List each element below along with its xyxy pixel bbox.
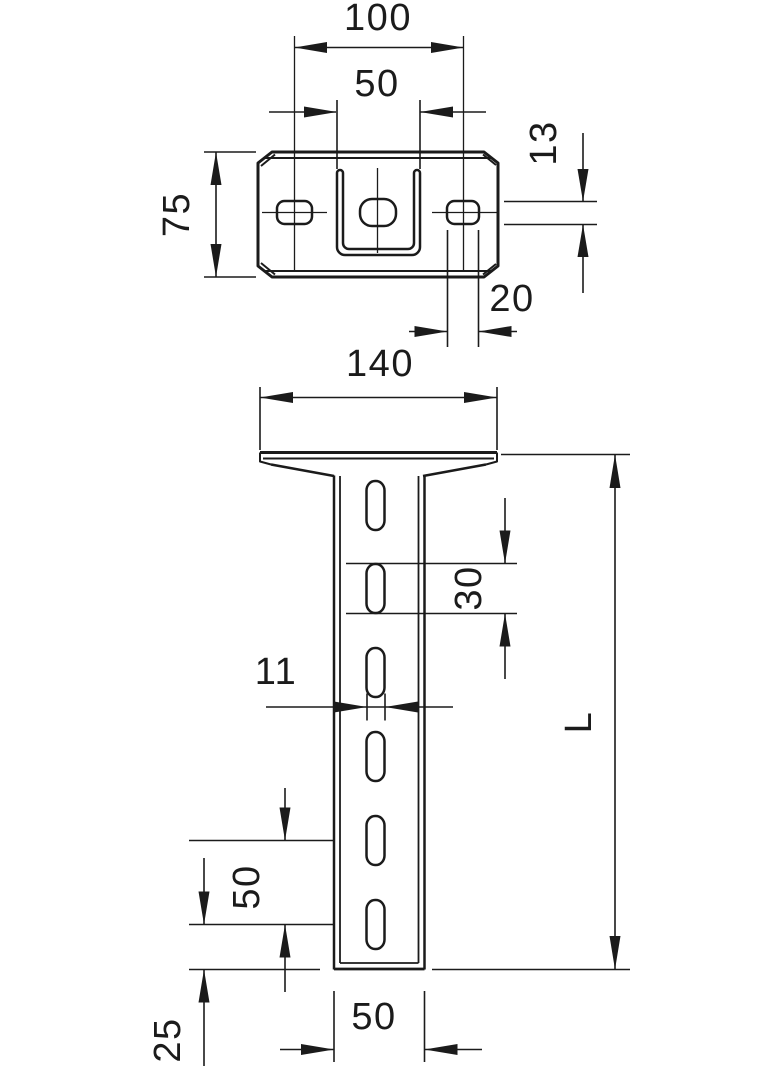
dim-arrow-140-left (260, 392, 293, 403)
front-view: 140 30 11 L (147, 343, 630, 1066)
dim-arrow-L-top (610, 455, 621, 489)
u-profile-walls (337, 170, 420, 255)
dim-label-20: 20 (489, 278, 534, 320)
dim-arrow-100-left (295, 42, 328, 53)
dimension-plate-depth: 75 (156, 152, 256, 277)
dim-label-50-pitch: 50 (226, 864, 268, 909)
dimension-total-length: L (432, 455, 630, 970)
dimension-slot-center-spacing: 100 (295, 0, 464, 53)
dim-label-30: 30 (448, 565, 490, 610)
post-slot-2 (367, 564, 385, 613)
dimension-post-width: 50 (280, 991, 482, 1062)
top-view: 100 50 75 13 (156, 0, 597, 347)
dim-arrow-20-left (415, 326, 448, 337)
dimension-plate-width: 140 (260, 343, 497, 450)
dim-arrow-100-right (431, 42, 464, 53)
dim-label-13: 13 (523, 120, 565, 165)
dim-arrow-75-top (211, 152, 222, 185)
dim-arrow-25-bottom (199, 970, 210, 1003)
dimension-slot-pitch: 50 (189, 788, 334, 992)
dim-arrow-13-top (578, 169, 589, 202)
dim-arrow-11-right (385, 702, 418, 713)
dim-label-75: 75 (156, 192, 198, 237)
dim-arrow-30-top (500, 531, 511, 564)
post-slot-6 (367, 900, 385, 949)
dim-arrow-50t-right (420, 107, 453, 118)
dim-label-50-top: 50 (354, 63, 399, 105)
head-plate-underside-right (423, 465, 486, 477)
post-slot-1 (367, 481, 385, 530)
post-slot-5 (367, 816, 385, 865)
dim-arrow-75-bottom (211, 244, 222, 277)
dim-arrow-50b-right (425, 1044, 458, 1055)
dim-arrow-140-right (464, 392, 497, 403)
dim-arrow-11-left (334, 702, 367, 713)
dim-label-50-bottom: 50 (351, 996, 396, 1038)
dim-label-100: 100 (344, 0, 412, 39)
dim-label-25: 25 (147, 1017, 189, 1062)
dim-arrow-25-top (199, 892, 210, 925)
dim-arrow-L-bottom (610, 936, 621, 970)
dim-label-11: 11 (255, 651, 297, 693)
dim-label-140: 140 (346, 343, 414, 385)
dim-arrow-50b-left (301, 1044, 334, 1055)
dim-arrow-50p-bottom (280, 925, 291, 958)
technical-drawing-page: 100 50 75 13 (0, 0, 784, 1066)
dim-arrow-50p-top (280, 808, 291, 841)
technical-drawing-canvas: 100 50 75 13 (0, 0, 784, 1066)
post-slot-4 (367, 732, 385, 781)
dimension-side-slot-width: 20 (409, 230, 535, 347)
dim-arrow-13-bottom (578, 225, 589, 258)
head-plate-underside-left (271, 465, 334, 477)
post-slot-3 (367, 648, 385, 697)
dim-label-L: L (558, 711, 600, 734)
dimension-side-slot-height: 13 (504, 120, 597, 293)
dim-arrow-30-bottom (500, 614, 511, 647)
dim-arrow-20-right (479, 326, 512, 337)
slotted-post (334, 476, 425, 970)
dim-arrow-50t-left (304, 107, 337, 118)
head-plate-side (260, 453, 497, 477)
dimension-slot-length: 30 (346, 498, 517, 679)
